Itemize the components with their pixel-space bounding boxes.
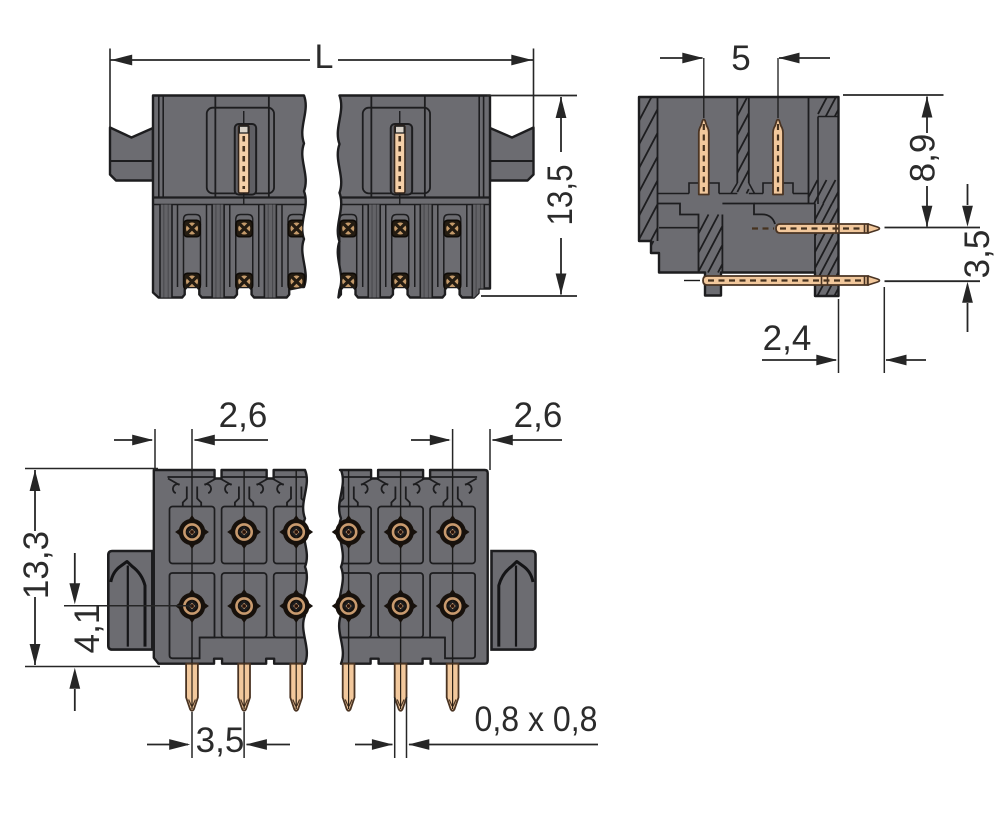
svg-text:2,6: 2,6: [514, 396, 563, 435]
svg-text:2,4: 2,4: [763, 319, 812, 358]
svg-text:8,9: 8,9: [904, 134, 943, 183]
svg-text:2,6: 2,6: [219, 396, 268, 435]
svg-text:3,5: 3,5: [958, 230, 997, 279]
svg-text:13,3: 13,3: [17, 531, 56, 599]
svg-text:3,5: 3,5: [196, 721, 245, 760]
svg-text:0,8 x 0,8: 0,8 x 0,8: [475, 700, 598, 739]
svg-text:13,5: 13,5: [541, 165, 580, 226]
svg-text:5: 5: [731, 39, 750, 78]
svg-text:L: L: [315, 38, 334, 76]
svg-text:4,1: 4,1: [68, 605, 107, 654]
